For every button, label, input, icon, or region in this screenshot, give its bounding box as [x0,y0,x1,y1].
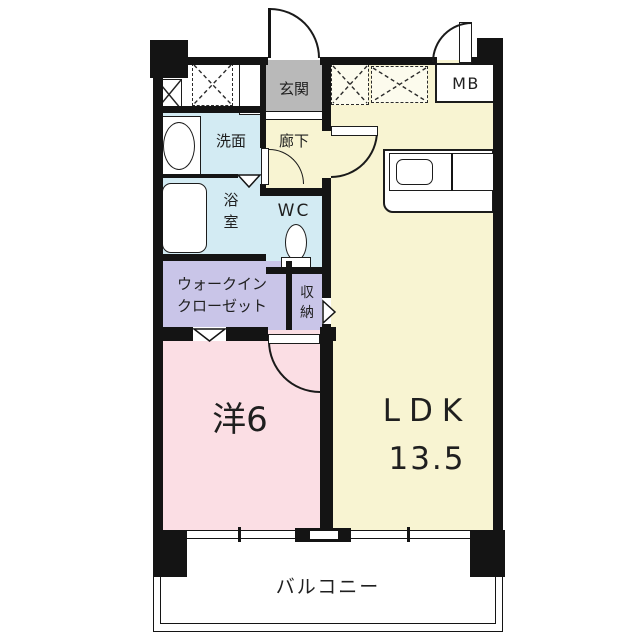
pier-top-left [150,40,188,78]
entrance-door-arc [270,8,320,58]
storage-door-marker-icon [322,300,336,324]
window-western6 [187,530,295,539]
toilet-bowl [285,224,307,261]
western6-label: 洋6 [170,393,310,439]
bathtub [162,183,207,253]
wall-western6-top-a [153,327,193,341]
entrance-label: 玄関 [266,77,322,99]
entrance-step [266,111,322,120]
hallway-label: 廊下 [266,129,322,151]
wall-washroom-top [153,106,266,113]
washbasin-bowl [163,122,195,170]
upper-cabinet-x-icon-1 [192,63,233,106]
walkin-closet-label-line1: ウォークイン [177,274,267,296]
walkin-closet-label-line2: クローゼット [177,296,267,318]
balcony-label: バルコニー [153,572,503,598]
kitchen-divider [451,153,453,191]
pier-bottom-right [470,530,505,577]
ldk-label: LDK [362,390,492,432]
wall-bath-divider [158,174,238,178]
window-mullion-left [238,527,241,542]
wall-bath-bottom [153,254,266,261]
upper-cabinet-x-icon-3 [371,66,428,103]
window-mullion-right [407,527,410,542]
pier-bottom-left [153,530,187,577]
floor-plan: バルコニー MB [0,0,640,640]
wall-western6-top-b [226,327,268,341]
wall-top-2 [320,57,437,65]
mb-door-arc [432,22,472,62]
pier-top-right [477,38,503,62]
western6-door-leaf [268,334,320,344]
wall-wc-top [260,188,331,196]
wall-western6-ldk [320,333,333,528]
wc-label: WC [266,199,322,223]
bathroom-label-line2: 室 [223,212,238,234]
wall-hall-right-a [322,57,331,131]
wall-right [493,57,503,535]
bathroom-label: 浴 室 [215,185,247,239]
storage-label-line2: 納 [300,303,314,323]
washroom-label: 洗面 [196,129,266,151]
bathroom-label-line1: 浴 [223,190,238,212]
storage-label: 収 納 [294,281,320,325]
kitchen-sink [396,159,433,185]
walkin-closet-label: ウォークイン クローゼット [160,272,284,320]
meter-box-label: MB [435,66,497,100]
pier-center-notch [310,531,338,539]
wall-closet-divider [286,261,292,330]
storage-label-line1: 収 [300,283,314,303]
wic-door-marker-icon [193,328,226,342]
upper-cabinet-x-icon-2 [331,64,369,105]
ldk-door-leaf [331,126,378,136]
washroom-door-leaf [261,148,269,185]
ldk-size-label: 13.5 [362,438,492,480]
window-ldk [351,530,470,539]
